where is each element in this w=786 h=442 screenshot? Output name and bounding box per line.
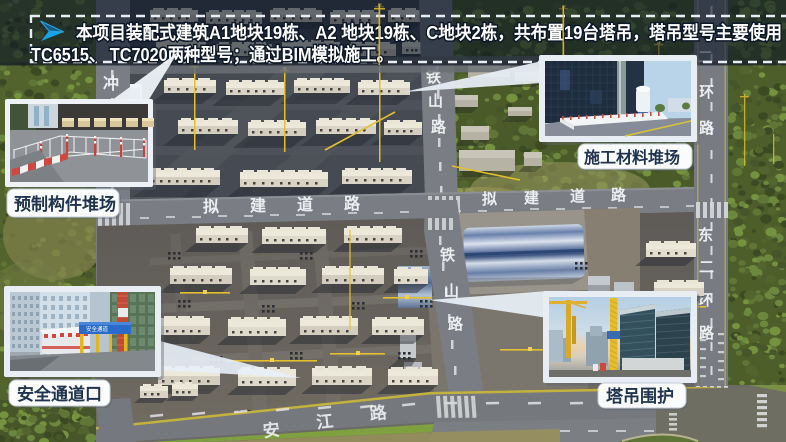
svg-text:路: 路	[344, 194, 361, 213]
svg-text:东: 东	[698, 226, 713, 244]
svg-text:塔吊围护: 塔吊围护	[606, 386, 674, 406]
svg-text:建: 建	[524, 189, 540, 207]
svg-text:路: 路	[699, 324, 715, 342]
svg-text:环: 环	[699, 84, 714, 101]
svg-text:安: 安	[262, 419, 281, 441]
svg-text:山: 山	[428, 93, 443, 110]
svg-text:预制构件堆场: 预制构件堆场	[14, 194, 116, 214]
svg-text:路: 路	[611, 186, 627, 204]
svg-text:二: 二	[699, 259, 714, 276]
svg-text:路: 路	[448, 315, 464, 333]
svg-text:道: 道	[570, 187, 585, 205]
svg-text:路: 路	[369, 402, 389, 424]
svg-text:施工材料堆场: 施工材料堆场	[584, 148, 680, 167]
svg-text:建: 建	[250, 197, 266, 215]
svg-text:本项目装配式建筑A1地块19栋、A2 地块19栋、C地块2栋: 本项目装配式建筑A1地块19栋、A2 地块19栋、C地块2栋，共布置19台塔吊，…	[76, 22, 782, 43]
svg-text:安全通道口: 安全通道口	[17, 384, 102, 404]
svg-text:铁: 铁	[440, 246, 455, 264]
svg-text:山: 山	[444, 283, 459, 300]
svg-text:安全通道: 安全通道	[86, 325, 109, 333]
svg-text:路: 路	[431, 118, 447, 136]
svg-text:拟: 拟	[482, 190, 497, 208]
svg-text:TC6515、 TC7020两种型号；通过BIM模拟施工。: TC6515、 TC7020两种型号；通过BIM模拟施工。	[31, 44, 393, 65]
svg-text:拟: 拟	[203, 197, 219, 216]
svg-text:冲: 冲	[103, 74, 119, 93]
svg-text:江: 江	[315, 412, 334, 433]
svg-text:道: 道	[297, 195, 313, 214]
svg-text:路: 路	[699, 119, 715, 137]
